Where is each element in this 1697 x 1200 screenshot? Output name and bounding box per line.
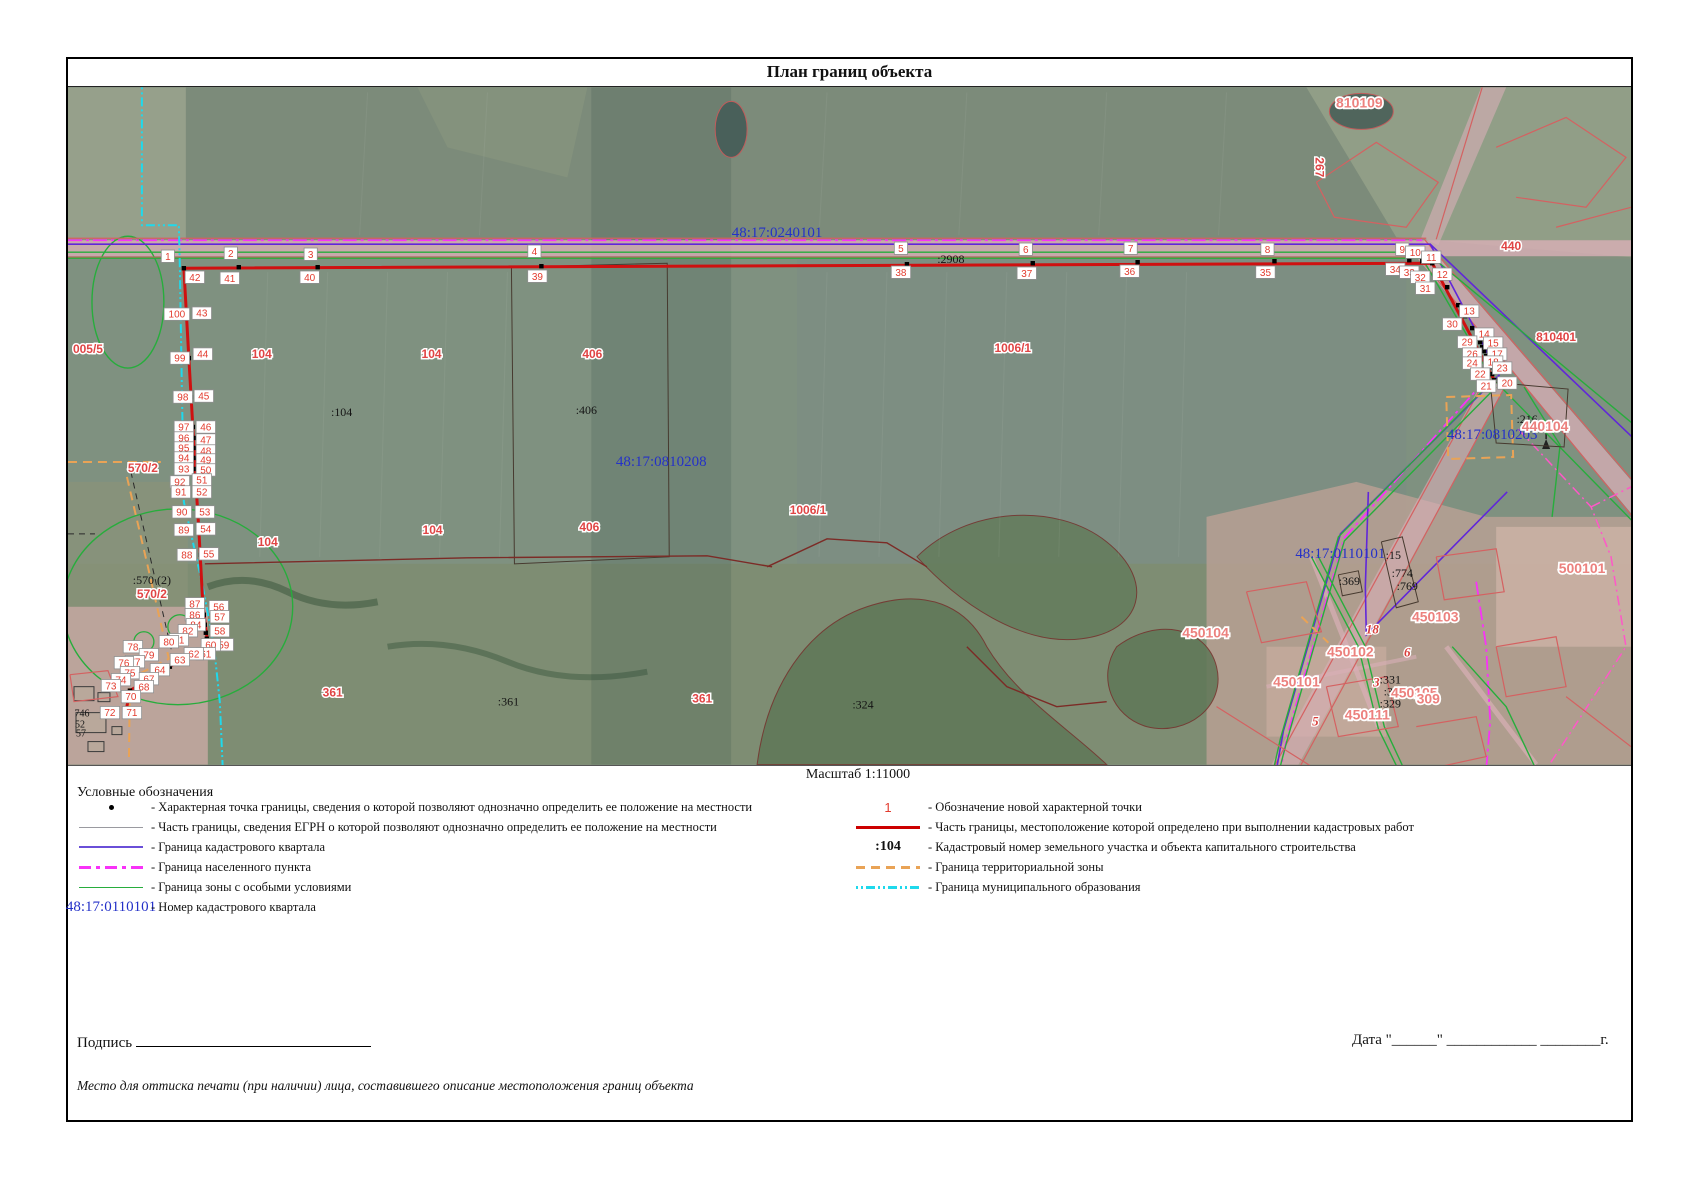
parcel-number-red: 406 — [582, 347, 602, 361]
parcel-number-black: :774 — [1392, 566, 1413, 580]
point-label-52: 52 — [196, 488, 208, 499]
map-canvas: 1234567891011424140393837363534333231121… — [68, 87, 1631, 765]
point-label-79: 79 — [143, 650, 155, 661]
parcel-number-red: 1006/1 — [994, 341, 1031, 355]
boundary-point-dot — [1031, 261, 1035, 265]
parcel-number-red: 450111 — [1345, 707, 1390, 723]
parcel-number-italic: 18 — [1366, 622, 1379, 637]
signature-line — [136, 1032, 371, 1047]
legend-item-text: - Граница муниципального образования — [924, 880, 1141, 895]
parcel-number-red: 450101 — [1273, 674, 1320, 690]
point-label-78: 78 — [127, 642, 139, 653]
legend-left-column: - Характерная точка границы, сведения о … — [75, 797, 845, 917]
legend-item: 48:17:0110101- Номер кадастрового кварта… — [75, 897, 845, 917]
parcel-number-italic: 3 — [1372, 675, 1380, 690]
page-title: План границ объекта — [68, 59, 1631, 86]
parcel-number-red: 406 — [579, 520, 599, 534]
point-label-63: 63 — [174, 655, 186, 666]
boundary-point-dot — [315, 265, 319, 269]
parcel-number-red: 570/2 — [128, 461, 158, 475]
parcel-number-red: 104 — [423, 523, 443, 537]
point-label-93: 93 — [178, 465, 190, 476]
point-label-22: 22 — [1475, 370, 1487, 381]
legend-item-text: - Номер кадастрового квартала — [147, 900, 316, 915]
plan-frame: План границ объекта — [66, 57, 1633, 1122]
parcel-number-red: 361 — [323, 686, 343, 700]
cyan-line-icon — [852, 886, 924, 889]
legend-item: - Граница муниципального образования — [852, 877, 1622, 897]
legend-item-text: - Граница населенного пункта — [147, 860, 311, 875]
point-label-2: 2 — [228, 249, 234, 260]
parcel-number-red: 570/2 — [137, 587, 167, 601]
parcel-number-red: 361 — [692, 692, 712, 706]
red-num-symbol: 1 — [852, 800, 924, 815]
legend-item-text: - Граница зоны с особыми условиями — [147, 880, 351, 895]
point-label-43: 43 — [196, 309, 208, 320]
point-label-100: 100 — [169, 310, 186, 321]
point-label-71: 71 — [126, 708, 138, 719]
scale-label: Масштаб 1:11000 — [668, 767, 1048, 783]
parcel-number-black: 57 — [76, 729, 86, 740]
boundary-point-dot — [237, 265, 241, 269]
parcel-number-italic: 6 — [1404, 645, 1411, 660]
signature-label: Подпись — [77, 1035, 132, 1051]
point-label-31: 31 — [1420, 284, 1432, 295]
point-label-51: 51 — [196, 476, 208, 487]
legend-item: - Граница зоны с особыми условиями — [75, 877, 845, 897]
parcel-number-black: :15 — [1386, 548, 1401, 562]
point-label-20: 20 — [1502, 379, 1514, 390]
legend-item: :104- Кадастровый номер земельного участ… — [852, 837, 1622, 857]
point-label-41: 41 — [224, 274, 236, 285]
point-label-23: 23 — [1497, 364, 1509, 375]
point-label-5: 5 — [898, 244, 904, 255]
parcel-number-red: 450102 — [1327, 644, 1374, 660]
green-line-icon — [75, 887, 147, 888]
parcel-number-red: 309 — [1417, 691, 1441, 707]
point-label-6: 6 — [1023, 245, 1029, 256]
parcel-number-black: :2908 — [937, 252, 964, 266]
map: 1234567891011424140393837363534333231121… — [68, 86, 1631, 766]
point-label-88: 88 — [181, 550, 193, 561]
point-label-37: 37 — [1021, 269, 1033, 280]
point-label-21: 21 — [1481, 382, 1493, 393]
parcel-number-black: :570 (2) — [133, 573, 171, 587]
parcel-number-black: :369 — [1339, 574, 1360, 588]
parcel-number-red: 450103 — [1412, 609, 1459, 625]
point-label-7: 7 — [1128, 244, 1134, 255]
point-label-54: 54 — [200, 524, 212, 535]
point-label-53: 53 — [199, 507, 211, 518]
quarter-number: 48:17:0240101 — [732, 225, 823, 241]
point-label-57: 57 — [214, 612, 226, 623]
point-label-4: 4 — [532, 247, 538, 258]
parcel-number-black: :324 — [852, 698, 873, 712]
parcel-number-italic: 5 — [1312, 714, 1319, 729]
legend-item: - Граница населенного пункта — [75, 857, 845, 877]
parcel-number-black: :406 — [576, 403, 597, 417]
blue-num-symbol: 48:17:0110101 — [75, 899, 147, 916]
point-label-13: 13 — [1464, 307, 1476, 318]
parcel-number-red: 104 — [422, 347, 442, 361]
stamp-note: Место для оттиска печати (при наличии) л… — [77, 1078, 694, 1094]
legend-item-text: - Граница территориальной зоны — [924, 860, 1104, 875]
point-label-1: 1 — [165, 252, 171, 263]
point-label-29: 29 — [1462, 338, 1474, 349]
point-label-46: 46 — [200, 423, 212, 434]
point-label-99: 99 — [174, 354, 186, 365]
parcel-number-black: :769 — [1397, 579, 1418, 593]
legend-item-text: - Характерная точка границы, сведения о … — [147, 800, 752, 815]
legend-item-text: - Часть границы, сведения ЕГРН о которой… — [147, 820, 717, 835]
boundary-point-dot — [1135, 260, 1139, 264]
point-label-55: 55 — [203, 549, 215, 560]
parcel-number-black: :104 — [331, 405, 352, 419]
point-label-98: 98 — [177, 393, 189, 404]
point-label-45: 45 — [198, 392, 210, 403]
parcel-number-red: 810109 — [1336, 94, 1383, 110]
point-label-72: 72 — [104, 708, 116, 719]
legend-item-text: - Часть границы, местоположение которой … — [924, 820, 1414, 835]
point-label-40: 40 — [304, 273, 316, 284]
legend-item-text: - Граница кадастрового квартала — [147, 840, 325, 855]
legend-item: - Граница территориальной зоны — [852, 857, 1622, 877]
point-label-42: 42 — [189, 273, 201, 284]
point-label-9: 9 — [1400, 245, 1406, 256]
point-label-58: 58 — [214, 626, 226, 637]
legend-item-text: - Обозначение новой характерной точки — [924, 800, 1142, 815]
quarter-number: 48:17:0110101 — [1295, 546, 1385, 562]
boundary-point-dot — [1470, 326, 1474, 330]
point-label-73: 73 — [105, 681, 117, 692]
legend-item: - Характерная точка границы, сведения о … — [75, 797, 845, 817]
parcel-number-black: 746 — [75, 709, 90, 720]
parcel-number-red: 104 — [258, 535, 278, 549]
parcel-number-red: 005/5 — [73, 342, 103, 356]
boundary-point-dot — [539, 264, 543, 268]
boundary-point-dot — [1272, 259, 1276, 263]
quarter-number: 48:17:0810208 — [616, 454, 707, 470]
legend-item: 1- Обозначение новой характерной точки — [852, 797, 1622, 817]
point-label-62: 62 — [188, 649, 200, 660]
parcel-number-red: 440 — [1501, 239, 1521, 253]
date-line: Дата "______" ____________ ________г. — [1352, 1032, 1609, 1049]
point-label-36: 36 — [1124, 267, 1136, 278]
boundary-point-dot — [182, 266, 186, 270]
signature-row: Подпись — [77, 1032, 371, 1052]
parcel-number-red: 1006/1 — [790, 503, 827, 517]
blue-line-icon — [75, 846, 147, 848]
page: { "title": "План границ объекта", "scale… — [0, 0, 1697, 1200]
parcel-number-red: 450104 — [1182, 625, 1229, 641]
magenta-line-icon — [75, 866, 147, 869]
point-label-70: 70 — [125, 692, 137, 703]
point-label-12: 12 — [1437, 270, 1449, 281]
black-num-symbol: :104 — [852, 839, 924, 855]
point-label-39: 39 — [532, 272, 544, 283]
point-label-3: 3 — [308, 250, 314, 261]
point-label-35: 35 — [1260, 268, 1272, 279]
point-label-8: 8 — [1265, 245, 1271, 256]
parcel-number-black: :361 — [498, 695, 519, 709]
point-label-44: 44 — [197, 350, 209, 361]
point-label-30: 30 — [1447, 320, 1459, 331]
point-symbol-icon — [75, 805, 147, 810]
parcel-number-red: 104 — [252, 347, 272, 361]
red-line-icon — [852, 826, 924, 829]
legend-item: - Часть границы, сведения ЕГРН о которой… — [75, 817, 845, 837]
point-label-11: 11 — [1426, 253, 1437, 264]
point-label-91: 91 — [175, 488, 187, 499]
point-label-10: 10 — [1410, 248, 1422, 259]
legend-item-text: - Кадастровый номер земельного участка и… — [924, 840, 1356, 855]
legend-item: - Часть границы, местоположение которой … — [852, 817, 1622, 837]
legend-item: - Граница кадастрового квартала — [75, 837, 845, 857]
point-label-90: 90 — [176, 507, 188, 518]
point-label-38: 38 — [895, 268, 907, 279]
point-label-80: 80 — [163, 637, 175, 648]
parcel-number-red: 500101 — [1559, 560, 1606, 576]
gray-line-icon — [75, 827, 147, 828]
parcel-number-red: 810401 — [1536, 330, 1576, 344]
terrain-layer — [68, 87, 1631, 764]
parcel-number-red: 440104 — [1522, 418, 1569, 434]
parcel-number-red: 267 — [1312, 157, 1326, 177]
legend-right-column: 1- Обозначение новой характерной точки- … — [852, 797, 1622, 897]
boundary-point-dot — [1445, 285, 1449, 289]
point-label-89: 89 — [178, 525, 190, 536]
orange-line-icon — [852, 866, 924, 869]
